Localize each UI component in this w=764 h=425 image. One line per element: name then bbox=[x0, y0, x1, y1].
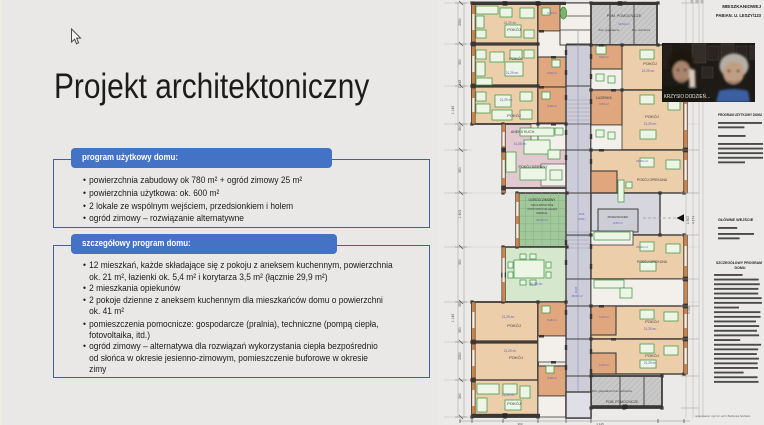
svg-text:POKÓJ: POKÓJ bbox=[645, 353, 659, 358]
svg-text:30,04 m²: 30,04 m² bbox=[618, 22, 630, 26]
svg-text:21,29 m²: 21,29 m² bbox=[504, 349, 517, 353]
svg-text:1 145: 1 145 bbox=[451, 314, 455, 323]
svg-text:POKÓJ: POKÓJ bbox=[645, 319, 659, 324]
svg-text:Pom. techniczne: Pom. techniczne bbox=[632, 29, 651, 32]
svg-text:OGRÓD ZIMOWY: OGRÓD ZIMOWY bbox=[529, 197, 557, 202]
svg-text:6,60 m²: 6,60 m² bbox=[547, 71, 557, 75]
svg-text:(POD.): (POD.) bbox=[578, 218, 586, 221]
svg-text:POKÓJ OPIEKUNA: POKÓJ OPIEKUNA bbox=[637, 259, 668, 264]
svg-text:6,40 m²: 6,40 m² bbox=[547, 318, 557, 322]
svg-text:6,40 m²: 6,40 m² bbox=[547, 104, 557, 108]
svg-text:TARAS RATNIO IPSE: TARAS RATNIO IPSE bbox=[531, 204, 554, 207]
svg-text:POKÓJ: POKÓJ bbox=[507, 27, 521, 32]
svg-text:2560: 2560 bbox=[458, 352, 462, 360]
svg-text:21,29 m²: 21,29 m² bbox=[502, 315, 515, 319]
svg-text:6,43 m²: 6,43 m² bbox=[599, 315, 609, 319]
svg-text:POKÓJ DZIENNY: POKÓJ DZIENNY bbox=[519, 164, 549, 169]
svg-text:41,05 m²: 41,05 m² bbox=[514, 142, 527, 146]
svg-text:21,29 m²: 21,29 m² bbox=[500, 98, 513, 102]
svg-text:6,63 m²: 6,63 m² bbox=[599, 102, 609, 106]
svg-text:Pom. gospodarcze Pom. technic: Pom. gospodarcze Pom. techniczne bbox=[592, 390, 633, 393]
svg-text:PRZEDSIONEK: PRZEDSIONEK bbox=[608, 215, 629, 219]
svg-text:POKÓJ OPIEKUNA: POKÓJ OPIEKUNA bbox=[637, 177, 668, 182]
svg-text:POM. POMOCNICZE: POM. POMOCNICZE bbox=[606, 400, 639, 404]
svg-text:21,29 m²: 21,29 m² bbox=[506, 71, 519, 75]
svg-text:SZCZEGÓŁOWY PROGRAM: SZCZEGÓŁOWY PROGRAM bbox=[716, 260, 762, 265]
svg-text:360: 360 bbox=[458, 59, 462, 65]
svg-text:26,04 m²: 26,04 m² bbox=[636, 159, 648, 163]
svg-text:POKÓJ: POKÓJ bbox=[645, 114, 659, 119]
svg-text:8,05 m²: 8,05 m² bbox=[613, 221, 623, 225]
svg-text:360: 360 bbox=[458, 259, 462, 265]
svg-text:360: 360 bbox=[458, 167, 462, 173]
svg-text:ŁAZIENKA: ŁAZIENKA bbox=[596, 96, 612, 100]
svg-text:26,04 m²: 26,04 m² bbox=[636, 245, 648, 249]
svg-text:PABIAN. U. LESZY/123: PABIAN. U. LESZY/123 bbox=[716, 13, 762, 18]
svg-text:1 145: 1 145 bbox=[451, 106, 455, 115]
svg-text:360: 360 bbox=[458, 125, 462, 131]
svg-text:GŁÓWNE WEJŚCIE: GŁÓWNE WEJŚCIE bbox=[718, 217, 754, 222]
svg-text:6,40 m²: 6,40 m² bbox=[547, 376, 557, 380]
svg-text:Pom. gospodarcze: Pom. gospodarcze bbox=[599, 29, 620, 32]
svg-text:opracowanie: mgr inż. arch. Ba: opracowanie: mgr inż. arch. Bartłomiej S… bbox=[695, 414, 751, 418]
svg-text:5,63 m²: 5,63 m² bbox=[599, 55, 609, 59]
svg-text:HOL: HOL bbox=[579, 212, 586, 216]
svg-text:40,86 m²: 40,86 m² bbox=[530, 282, 543, 286]
svg-text:21,29 m²: 21,29 m² bbox=[502, 393, 515, 397]
svg-text:21,29 m²: 21,29 m² bbox=[644, 361, 657, 365]
svg-text:360: 360 bbox=[458, 327, 462, 333]
svg-text:POKÓJ: POKÓJ bbox=[507, 113, 521, 118]
svg-text:POKÓJ: POKÓJ bbox=[643, 61, 657, 66]
svg-text:6,43 m²: 6,43 m² bbox=[599, 363, 609, 367]
svg-text:21,29 m²: 21,29 m² bbox=[642, 69, 655, 73]
svg-text:5,60 m²: 5,60 m² bbox=[547, 11, 557, 15]
svg-text:4 174: 4 174 bbox=[692, 216, 696, 224]
svg-text:DOMU: DOMU bbox=[735, 266, 746, 270]
svg-text:I OUTO OIOCIO dla pokojami: I OUTO OIOCIO dla pokojami bbox=[527, 209, 558, 211]
svg-text:5 536: 5 536 bbox=[687, 306, 691, 314]
svg-text:21,29 m²: 21,29 m² bbox=[644, 327, 657, 331]
svg-text:25,04 m²: 25,04 m² bbox=[536, 218, 548, 222]
svg-text:POKÓJ: POKÓJ bbox=[509, 56, 523, 61]
svg-text:10,05: 10,05 bbox=[574, 286, 578, 293]
svg-text:21,29 m²: 21,29 m² bbox=[644, 122, 657, 126]
svg-text:POKÓJ: POKÓJ bbox=[507, 401, 521, 406]
svg-text:ANEKS KUCH.: ANEKS KUCH. bbox=[511, 130, 535, 134]
svg-text:POKÓJ: POKÓJ bbox=[507, 323, 521, 328]
svg-text:POM. POMOCNICZE: POM. POMOCNICZE bbox=[607, 14, 642, 18]
svg-text:360: 360 bbox=[458, 393, 462, 399]
svg-text:MIESZKAŁ: MIESZKAŁ bbox=[536, 212, 548, 215]
svg-text:POKÓJ: POKÓJ bbox=[509, 355, 523, 360]
svg-text:28,63 m²: 28,63 m² bbox=[571, 294, 582, 298]
svg-text:2560: 2560 bbox=[458, 18, 462, 26]
svg-text:1 803: 1 803 bbox=[458, 210, 462, 219]
svg-text:21,29 m²: 21,29 m² bbox=[504, 21, 517, 25]
svg-text:PROGRAM UŻYTKOWY DOMU: PROGRAM UŻYTKOWY DOMU bbox=[718, 113, 762, 117]
svg-text:MIESZKANIOWEJ: MIESZKANIOWEJ bbox=[722, 4, 761, 9]
svg-text:1 502: 1 502 bbox=[686, 216, 690, 224]
